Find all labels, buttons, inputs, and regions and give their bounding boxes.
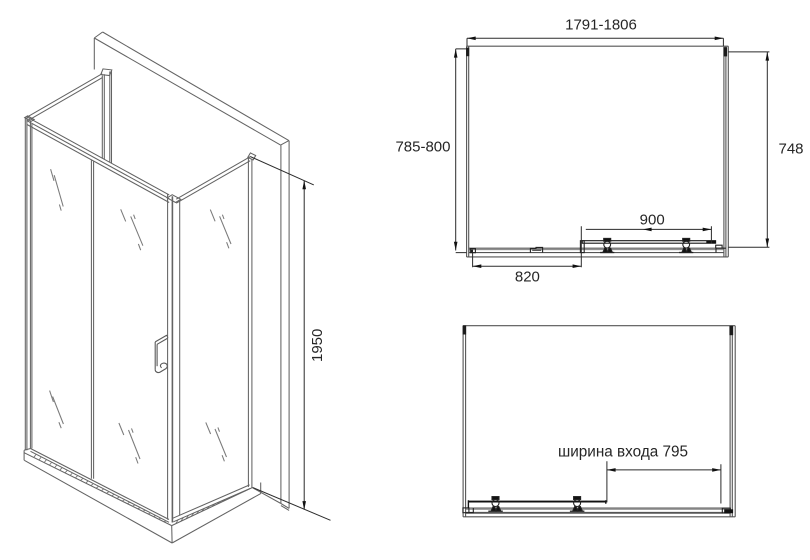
svg-text:1950: 1950 — [309, 329, 326, 362]
svg-text:1791-1806: 1791-1806 — [565, 17, 637, 34]
svg-text:820: 820 — [515, 269, 540, 286]
svg-text:785-800: 785-800 — [395, 139, 450, 156]
svg-text:900: 900 — [640, 211, 665, 228]
svg-text:ширина входа 795: ширина входа 795 — [558, 443, 688, 460]
svg-text:748: 748 — [778, 140, 803, 157]
